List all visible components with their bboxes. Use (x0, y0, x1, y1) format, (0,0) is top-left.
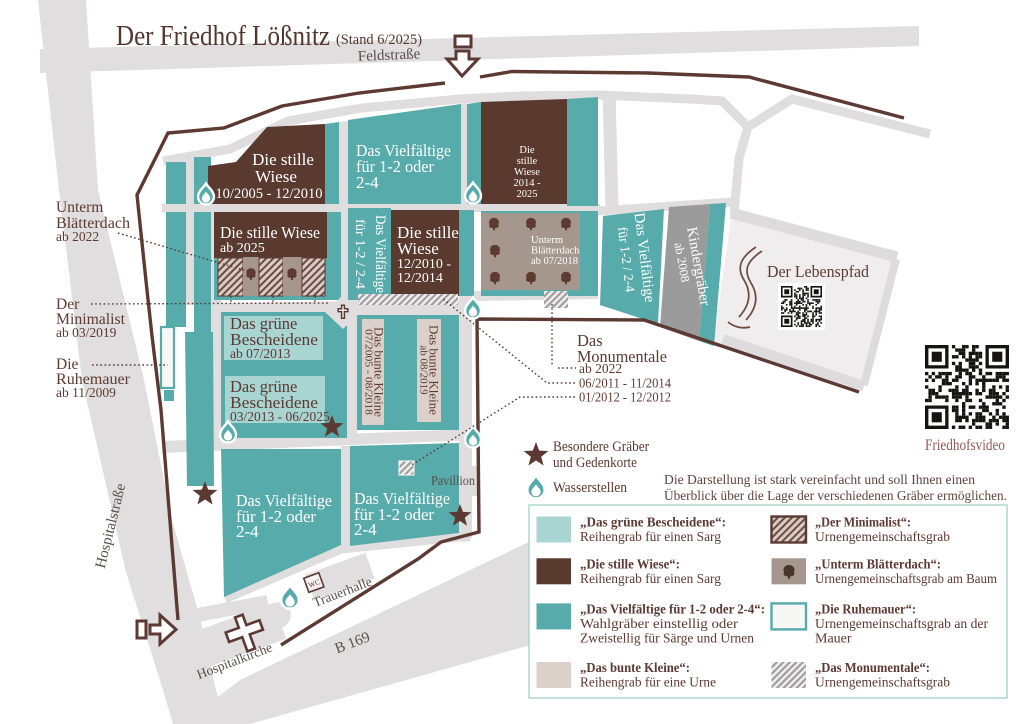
svg-text:Urnengemeinschaftsgrab: Urnengemeinschaftsgrab (815, 676, 950, 691)
svg-text:07/2005 - 08/2018: 07/2005 - 08/2018 (363, 329, 375, 416)
svg-text:stille: stille (517, 156, 538, 167)
svg-text:06/2011 - 11/2014: 06/2011 - 11/2014 (579, 376, 671, 391)
svg-text:10/2005 - 12/2010: 10/2005 - 12/2010 (215, 186, 322, 202)
svg-text:ab 07/2013: ab 07/2013 (230, 346, 291, 361)
svg-text:12/2014: 12/2014 (397, 271, 443, 286)
svg-text:ab 08/2019: ab 08/2019 (418, 345, 430, 395)
svg-text:und Gedenkorte: und Gedenkorte (553, 455, 637, 471)
svg-text:Urnengemeinschaftsgrab an der: Urnengemeinschaftsgrab an der (815, 617, 988, 632)
svg-text:ab 2022: ab 2022 (579, 361, 622, 376)
svg-text:Wiese: Wiese (255, 167, 297, 186)
svg-text:Blätterdach: Blätterdach (531, 246, 580, 257)
svg-text:Feldstraße: Feldstraße (357, 46, 420, 65)
svg-text:Überblick über die Lage der ve: Überblick über die Lage der verschiedene… (664, 487, 1007, 504)
svg-text:Pavillion: Pavillion (431, 473, 475, 488)
svg-text:2-4: 2-4 (354, 520, 377, 539)
svg-text:Wiese: Wiese (397, 239, 439, 258)
svg-text:„Die Ruhemauer“:: „Die Ruhemauer“: (815, 602, 916, 617)
svg-text:Mauer: Mauer (815, 631, 852, 646)
svg-text:Wasserstellen: Wasserstellen (553, 480, 627, 496)
svg-text:für 1-2 / 2-4: für 1-2 / 2-4 (353, 219, 368, 289)
svg-text:Das Vielfältige: Das Vielfältige (372, 215, 388, 293)
svg-text:2-4: 2-4 (356, 173, 379, 192)
svg-text:01/2012 - 12/2012: 01/2012 - 12/2012 (579, 390, 671, 405)
svg-text:Der Friedhof Lößnitz: Der Friedhof Lößnitz (116, 20, 330, 52)
svg-text:Wahlgräber einstellig oder: Wahlgräber einstellig oder (580, 617, 738, 632)
svg-text:„Das Vielfältige für 1-2 oder: „Das Vielfältige für 1-2 oder 2-4“: (580, 602, 765, 617)
svg-text:Urnengemeinschaftsgrab am Baum: Urnengemeinschaftsgrab am Baum (815, 572, 997, 587)
svg-text:Der Lebenspfad: Der Lebenspfad (767, 262, 869, 281)
svg-text:ab 03/2019: ab 03/2019 (56, 325, 117, 340)
svg-text:Unterm: Unterm (531, 235, 563, 246)
svg-text:Wiese: Wiese (514, 167, 540, 178)
svg-text:„Der Minimalist“:: „Der Minimalist“: (815, 516, 911, 531)
svg-text:Friedhofsvideo: Friedhofsvideo (925, 437, 1005, 454)
svg-text:„Unterm Blätterdach“:: „Unterm Blätterdach“: (815, 557, 941, 572)
svg-text:„Das grüne Bescheidene“:: „Das grüne Bescheidene“: (580, 516, 726, 531)
svg-text:ab 11/2009: ab 11/2009 (56, 385, 116, 400)
svg-text:„Das Monumentale“:: „Das Monumentale“: (815, 661, 930, 676)
svg-text:Die Darstellung ist stark vere: Die Darstellung ist stark vereinfacht un… (664, 473, 975, 488)
svg-text:03/2013 - 06/2025: 03/2013 - 06/2025 (230, 409, 330, 424)
svg-text:„Das bunte Kleine“:: „Das bunte Kleine“: (580, 661, 690, 676)
svg-text:Reihengrab für einen Sarg: Reihengrab für einen Sarg (580, 572, 721, 587)
svg-text:ab 2025: ab 2025 (220, 241, 265, 256)
svg-text:Die stille Wiese: Die stille Wiese (220, 223, 320, 242)
svg-text:2025: 2025 (517, 189, 538, 200)
svg-text:2014 -: 2014 - (513, 178, 541, 189)
svg-text:Unterm: Unterm (56, 199, 103, 216)
svg-text:Urnengemeinschaftsgrab: Urnengemeinschaftsgrab (815, 530, 950, 545)
svg-text:Reihengrab für eine Urne: Reihengrab für eine Urne (580, 676, 716, 691)
svg-text:Zweistellig für Särge und Urne: Zweistellig für Särge und Urnen (580, 631, 754, 646)
svg-text:„Die stille Wiese“:: „Die stille Wiese“: (580, 557, 680, 572)
svg-text:Besondere Gräber: Besondere Gräber (553, 439, 649, 455)
svg-text:ab 07/2018: ab 07/2018 (531, 256, 578, 267)
svg-text:12/2010 -: 12/2010 - (397, 257, 451, 272)
svg-text:Die: Die (519, 145, 535, 156)
svg-text:2-4: 2-4 (236, 522, 259, 541)
svg-text:(Stand 6/2025): (Stand 6/2025) (336, 32, 422, 48)
svg-text:Reihengrab für einen Sarg: Reihengrab für einen Sarg (580, 530, 721, 545)
svg-text:ab 2022: ab 2022 (56, 229, 99, 244)
